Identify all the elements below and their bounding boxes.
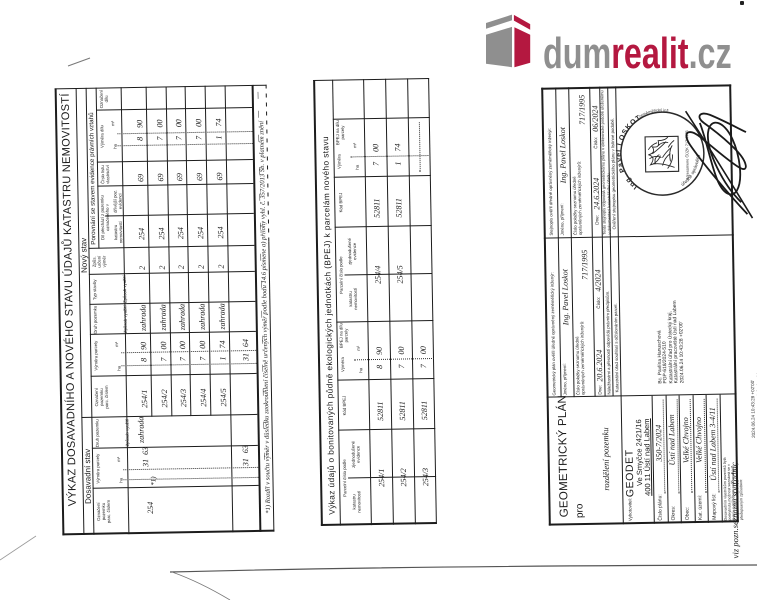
svg-text:zeměměřický inž.: zeměměřický inž. bbox=[637, 107, 670, 119]
svg-text:Ing. Pavel LOSKOT: Ing. Pavel LOSKOT bbox=[615, 114, 644, 190]
svg-text:úředně oprávněný: úředně oprávněný bbox=[680, 153, 701, 187]
